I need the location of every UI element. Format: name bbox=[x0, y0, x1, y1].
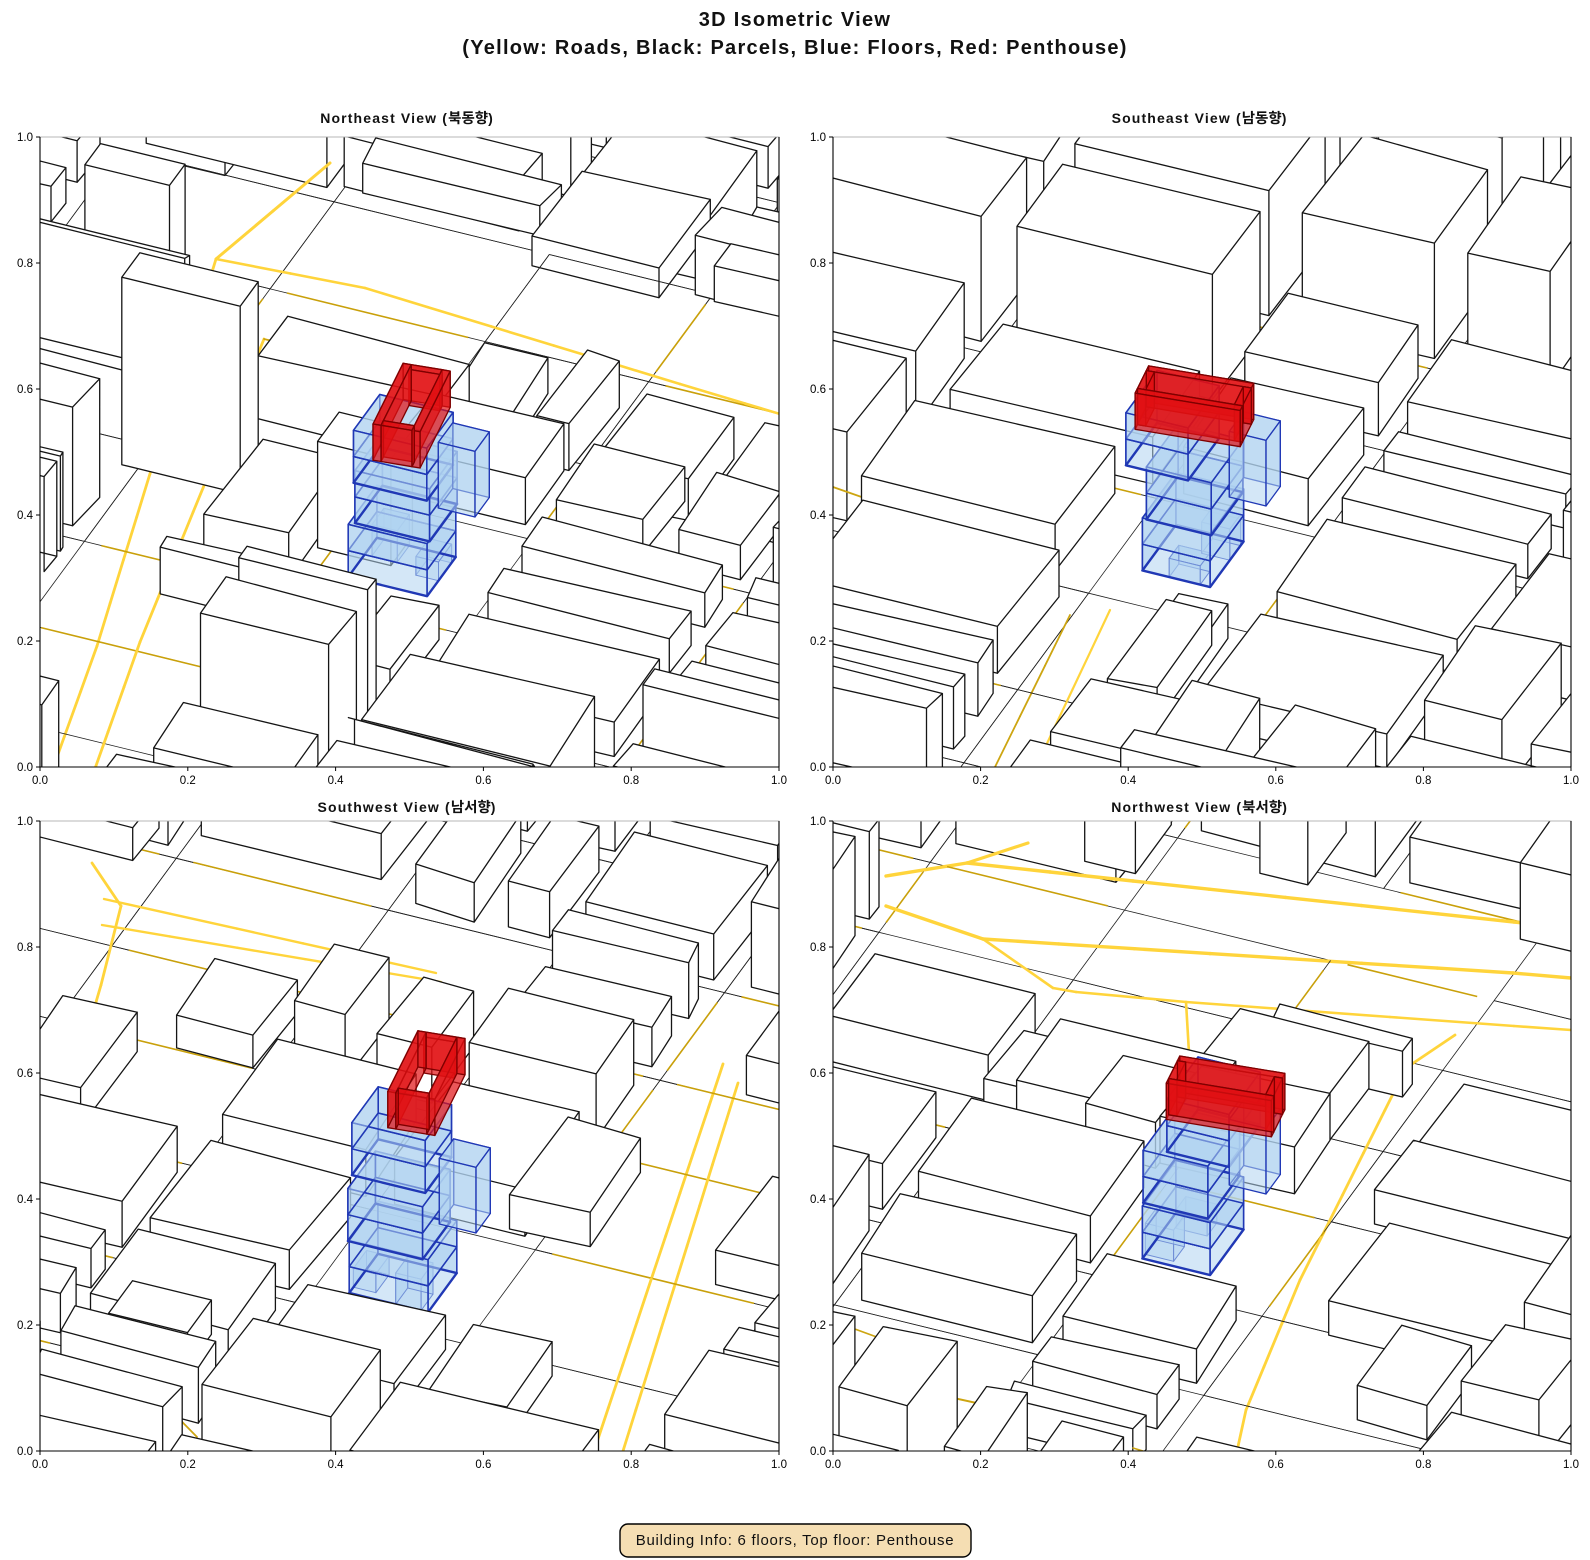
svg-text:0.8: 0.8 bbox=[810, 942, 826, 954]
svg-text:): ) bbox=[1282, 799, 1287, 815]
svg-text:Northwest View (: Northwest View ( bbox=[1111, 799, 1242, 815]
svg-text:0.4: 0.4 bbox=[328, 1459, 345, 1471]
svg-text:0.8: 0.8 bbox=[623, 775, 639, 787]
svg-text:0.0: 0.0 bbox=[810, 1446, 826, 1458]
svg-text:0.4: 0.4 bbox=[810, 510, 827, 522]
svg-text:(Yellow: Roads, Black: Parcels: (Yellow: Roads, Black: Parcels, Blue: Fl… bbox=[462, 37, 1127, 59]
svg-text:0.4: 0.4 bbox=[1120, 1459, 1137, 1471]
svg-text:0.6: 0.6 bbox=[17, 1068, 33, 1080]
svg-text:0.2: 0.2 bbox=[180, 775, 196, 787]
svg-text:0.0: 0.0 bbox=[32, 775, 48, 787]
svg-text:1.0: 1.0 bbox=[771, 1459, 787, 1471]
svg-text:0.2: 0.2 bbox=[973, 1459, 989, 1471]
svg-text:0.6: 0.6 bbox=[810, 1068, 826, 1080]
svg-text:0.6: 0.6 bbox=[17, 384, 33, 396]
svg-text:1.0: 1.0 bbox=[810, 816, 826, 828]
svg-text:0.8: 0.8 bbox=[810, 258, 826, 270]
svg-text:0.2: 0.2 bbox=[17, 636, 33, 648]
svg-text:0.8: 0.8 bbox=[17, 942, 33, 954]
svg-text:0.0: 0.0 bbox=[825, 775, 841, 787]
svg-text:0.0: 0.0 bbox=[32, 1459, 48, 1471]
svg-text:1.0: 1.0 bbox=[771, 775, 787, 787]
svg-text:0.4: 0.4 bbox=[810, 1194, 827, 1206]
svg-text:0.8: 0.8 bbox=[623, 1459, 639, 1471]
svg-text:1.0: 1.0 bbox=[17, 132, 33, 144]
svg-text:0.0: 0.0 bbox=[17, 1446, 33, 1458]
svg-text:0.2: 0.2 bbox=[180, 1459, 196, 1471]
svg-text:0.8: 0.8 bbox=[1415, 1459, 1431, 1471]
svg-text:): ) bbox=[491, 799, 496, 815]
svg-text:0.6: 0.6 bbox=[475, 775, 491, 787]
svg-text:0.6: 0.6 bbox=[475, 1459, 491, 1471]
svg-text:Southwest View (: Southwest View ( bbox=[318, 799, 451, 815]
svg-text:1.0: 1.0 bbox=[1563, 1459, 1579, 1471]
svg-text:0.8: 0.8 bbox=[1415, 775, 1431, 787]
svg-text:1.0: 1.0 bbox=[810, 132, 826, 144]
svg-text:0.4: 0.4 bbox=[17, 1194, 34, 1206]
svg-text:0.2: 0.2 bbox=[810, 1320, 826, 1332]
svg-text:Northeast View (: Northeast View ( bbox=[320, 110, 448, 126]
svg-text:1.0: 1.0 bbox=[17, 816, 33, 828]
svg-text:): ) bbox=[488, 110, 493, 126]
svg-text:0.0: 0.0 bbox=[825, 1459, 841, 1471]
svg-text:Building Info: 6 floors, Top f: Building Info: 6 floors, Top floor: Pent… bbox=[636, 1532, 955, 1549]
svg-text:Southeast View (: Southeast View ( bbox=[1112, 110, 1242, 126]
svg-text:0.4: 0.4 bbox=[1120, 775, 1137, 787]
svg-text:0.8: 0.8 bbox=[17, 258, 33, 270]
svg-text:0.0: 0.0 bbox=[810, 762, 826, 774]
svg-text:0.2: 0.2 bbox=[810, 636, 826, 648]
svg-text:0.4: 0.4 bbox=[17, 510, 34, 522]
svg-text:0.2: 0.2 bbox=[17, 1320, 33, 1332]
svg-text:0.2: 0.2 bbox=[973, 775, 989, 787]
svg-text:0.4: 0.4 bbox=[328, 775, 345, 787]
svg-text:0.0: 0.0 bbox=[17, 762, 33, 774]
svg-text:): ) bbox=[1282, 110, 1287, 126]
svg-text:3D Isometric View: 3D Isometric View bbox=[699, 9, 891, 31]
svg-text:0.6: 0.6 bbox=[1268, 1459, 1284, 1471]
svg-text:0.6: 0.6 bbox=[810, 384, 826, 396]
svg-text:1.0: 1.0 bbox=[1563, 775, 1579, 787]
svg-text:0.6: 0.6 bbox=[1268, 775, 1284, 787]
